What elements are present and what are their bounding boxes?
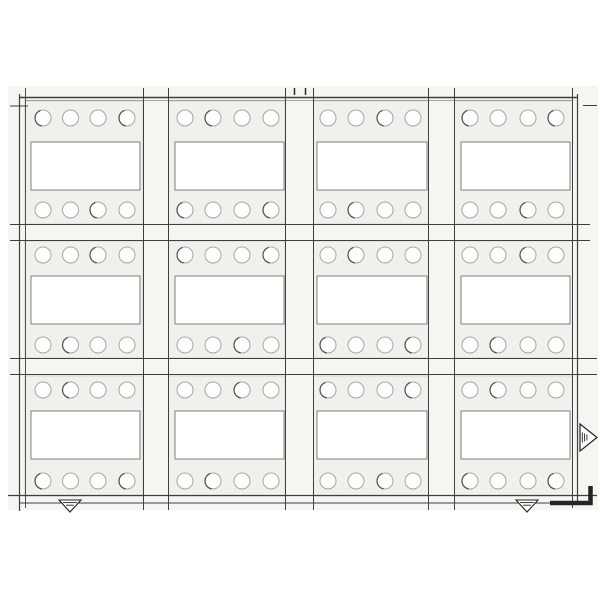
punch-hole [177, 337, 193, 353]
punch-hole [119, 337, 135, 353]
punch-hole [63, 202, 79, 218]
label-window [175, 411, 284, 459]
punch-hole [462, 337, 478, 353]
punch-hole [348, 110, 364, 126]
label-window [461, 142, 570, 190]
punch-hole [63, 110, 79, 126]
punch-hole [490, 202, 506, 218]
punch-hole [90, 110, 106, 126]
punch-hole [548, 202, 564, 218]
punch-hole [205, 337, 221, 353]
punch-hole [405, 473, 421, 489]
punch-hole [462, 382, 478, 398]
punch-hole [205, 382, 221, 398]
punch-hole [234, 110, 250, 126]
punch-hole [405, 202, 421, 218]
punch-hole [348, 473, 364, 489]
punch-hole [177, 473, 193, 489]
punch-hole [320, 473, 336, 489]
punch-hole [119, 382, 135, 398]
label-window [461, 276, 570, 324]
label-window [31, 142, 140, 190]
punch-hole [377, 337, 393, 353]
punch-hole [263, 382, 279, 398]
punch-hole [520, 473, 536, 489]
punch-hole [377, 382, 393, 398]
label-window [175, 276, 284, 324]
punch-hole [548, 337, 564, 353]
punch-hole [63, 473, 79, 489]
label-window [461, 411, 570, 459]
punch-hole [263, 337, 279, 353]
punch-hole [263, 110, 279, 126]
punch-hole [490, 110, 506, 126]
label-window [317, 411, 427, 459]
punch-hole [490, 473, 506, 489]
punch-hole [462, 247, 478, 263]
punch-hole [119, 247, 135, 263]
punch-hole [405, 247, 421, 263]
punch-hole [320, 110, 336, 126]
punch-hole [90, 473, 106, 489]
punch-hole [90, 382, 106, 398]
punch-hole [348, 337, 364, 353]
punch-hole [462, 202, 478, 218]
punch-hole [205, 202, 221, 218]
punch-hole [177, 382, 193, 398]
punch-hole [348, 382, 364, 398]
label-window [317, 142, 427, 190]
punch-hole [234, 473, 250, 489]
punch-hole [405, 110, 421, 126]
punch-hole [520, 337, 536, 353]
scanned-drawing-page [0, 0, 600, 600]
punch-hole [520, 110, 536, 126]
punch-hole [90, 337, 106, 353]
punch-hole [205, 247, 221, 263]
punch-hole [35, 382, 51, 398]
punch-hole [63, 247, 79, 263]
punch-hole [377, 247, 393, 263]
punch-hole [520, 382, 536, 398]
punch-hole [35, 337, 51, 353]
punch-hole [548, 247, 564, 263]
punch-hole [119, 202, 135, 218]
die-layout-drawing [0, 0, 600, 600]
label-window [31, 411, 140, 459]
punch-hole [490, 247, 506, 263]
punch-hole [177, 110, 193, 126]
punch-hole [320, 202, 336, 218]
label-window [31, 276, 140, 324]
punch-hole [234, 202, 250, 218]
label-window [317, 276, 427, 324]
punch-hole [234, 247, 250, 263]
punch-hole [377, 202, 393, 218]
punch-hole [320, 247, 336, 263]
punch-hole [35, 202, 51, 218]
label-window [175, 142, 284, 190]
punch-hole [548, 382, 564, 398]
punch-hole [35, 247, 51, 263]
punch-hole [263, 473, 279, 489]
